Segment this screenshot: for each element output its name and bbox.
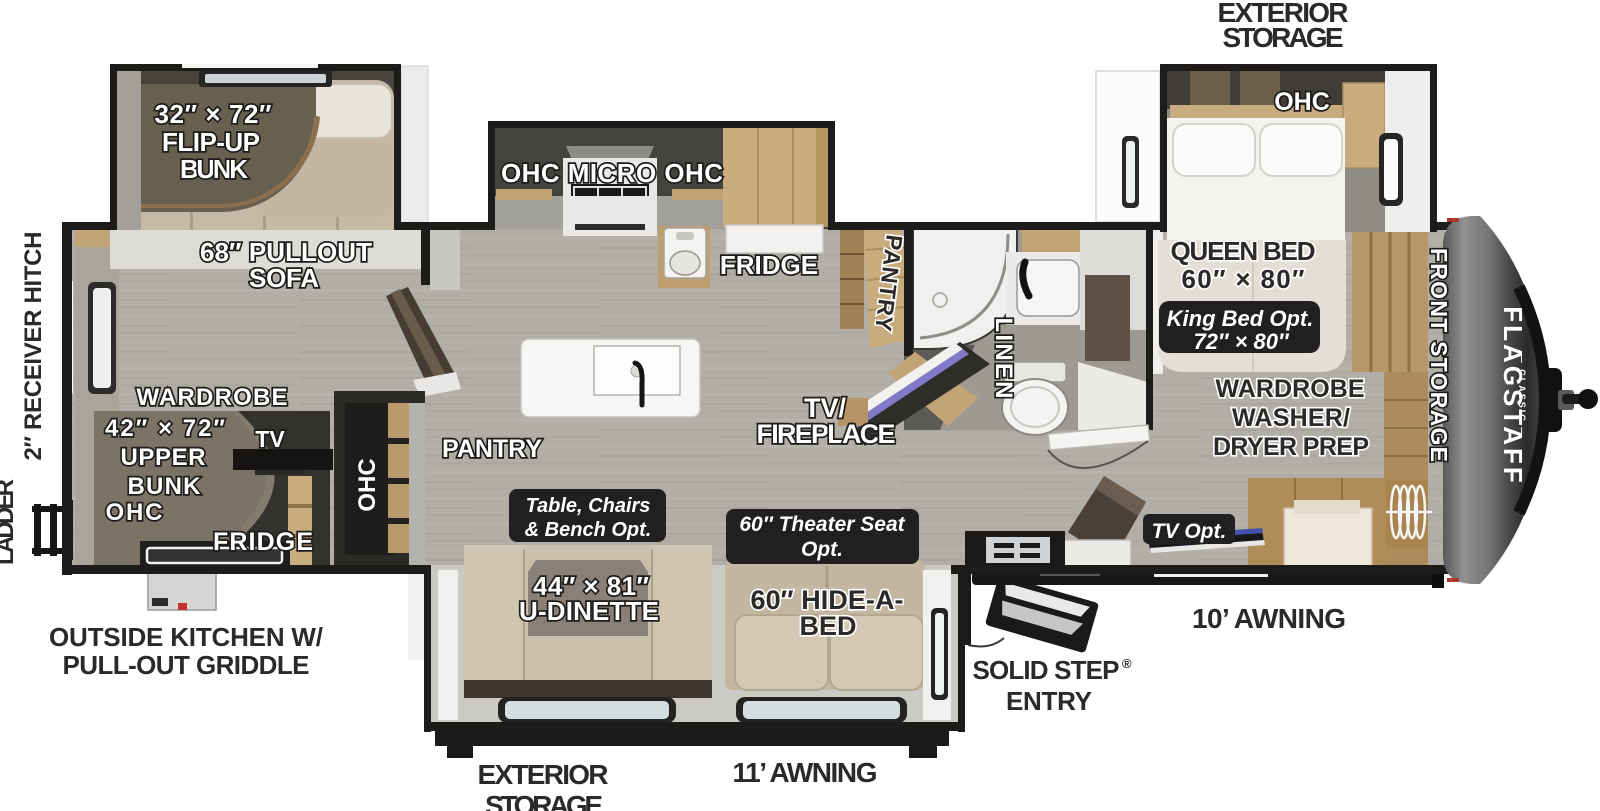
- svg-text:OHC MICRO OHC: OHC MICRO OHC: [501, 158, 723, 188]
- svg-text:72″ × 80″: 72″ × 80″: [1193, 329, 1290, 354]
- svg-text:FRIDGE: FRIDGE: [720, 250, 818, 280]
- svg-text:11’ AWNING: 11’ AWNING: [733, 757, 878, 788]
- svg-text:42″ × 72″: 42″ × 72″: [105, 415, 226, 442]
- svg-text:WARDROBE: WARDROBE: [137, 384, 288, 411]
- svg-text:32″ × 72″: 32″ × 72″: [155, 99, 272, 129]
- svg-text:60″ Theater Seat: 60″ Theater Seat: [739, 513, 905, 536]
- svg-text:Table, Chairs: Table, Chairs: [526, 495, 651, 517]
- svg-text:QUEEN BED: QUEEN BED: [1171, 236, 1316, 266]
- svg-text:U-DINETTE: U-DINETTE: [519, 596, 659, 626]
- svg-text:PULL-OUT GRIDDLE: PULL-OUT GRIDDLE: [63, 650, 310, 680]
- svg-text:ENTRY: ENTRY: [1006, 686, 1092, 716]
- svg-text:PANTRY: PANTRY: [442, 435, 542, 463]
- svg-text:OUTSIDE KITCHEN W/: OUTSIDE KITCHEN W/: [49, 622, 323, 652]
- svg-text:& Bench Opt.: & Bench Opt.: [525, 519, 652, 541]
- svg-text:LINEN: LINEN: [990, 318, 1017, 399]
- svg-text:BUNK: BUNK: [128, 473, 202, 500]
- svg-text:OHC: OHC: [354, 458, 381, 511]
- svg-text:FIREPLACE: FIREPLACE: [757, 419, 896, 449]
- svg-text:60″ × 80″: 60″ × 80″: [1182, 264, 1305, 294]
- svg-text:BED: BED: [799, 611, 856, 641]
- svg-text:LADDER: LADDER: [0, 479, 19, 565]
- svg-text:BUNK: BUNK: [180, 154, 248, 184]
- svg-text:SOLID STEP: SOLID STEP: [973, 655, 1120, 685]
- svg-text:2″ RECEIVER HITCH: 2″ RECEIVER HITCH: [20, 232, 47, 461]
- svg-text:TV Opt.: TV Opt.: [1152, 520, 1227, 543]
- svg-text:WARDROBE: WARDROBE: [1216, 375, 1365, 403]
- svg-text:SOFA: SOFA: [249, 263, 319, 293]
- svg-text:— CLASSIC —: — CLASSIC —: [1517, 354, 1527, 439]
- svg-text:Opt.: Opt.: [801, 538, 843, 561]
- svg-text:STORAGE: STORAGE: [1223, 22, 1344, 53]
- svg-text:OHC: OHC: [1274, 88, 1330, 116]
- svg-text:EXTERIOR: EXTERIOR: [478, 759, 609, 790]
- svg-text:DRYER PREP: DRYER PREP: [1213, 433, 1369, 461]
- svg-text:OHC: OHC: [106, 499, 163, 526]
- svg-text:10’ AWNING: 10’ AWNING: [1192, 603, 1346, 634]
- svg-text:FLIP-UP: FLIP-UP: [162, 127, 260, 157]
- svg-text:King Bed Opt.: King Bed Opt.: [1167, 306, 1314, 331]
- svg-text:STORAGE: STORAGE: [485, 790, 603, 811]
- svg-text:UPPER: UPPER: [121, 444, 206, 471]
- svg-text:TV: TV: [255, 426, 285, 452]
- svg-text:FRIDGE: FRIDGE: [213, 528, 313, 556]
- svg-text:WASHER/: WASHER/: [1232, 404, 1350, 432]
- svg-text:®: ®: [1122, 656, 1132, 671]
